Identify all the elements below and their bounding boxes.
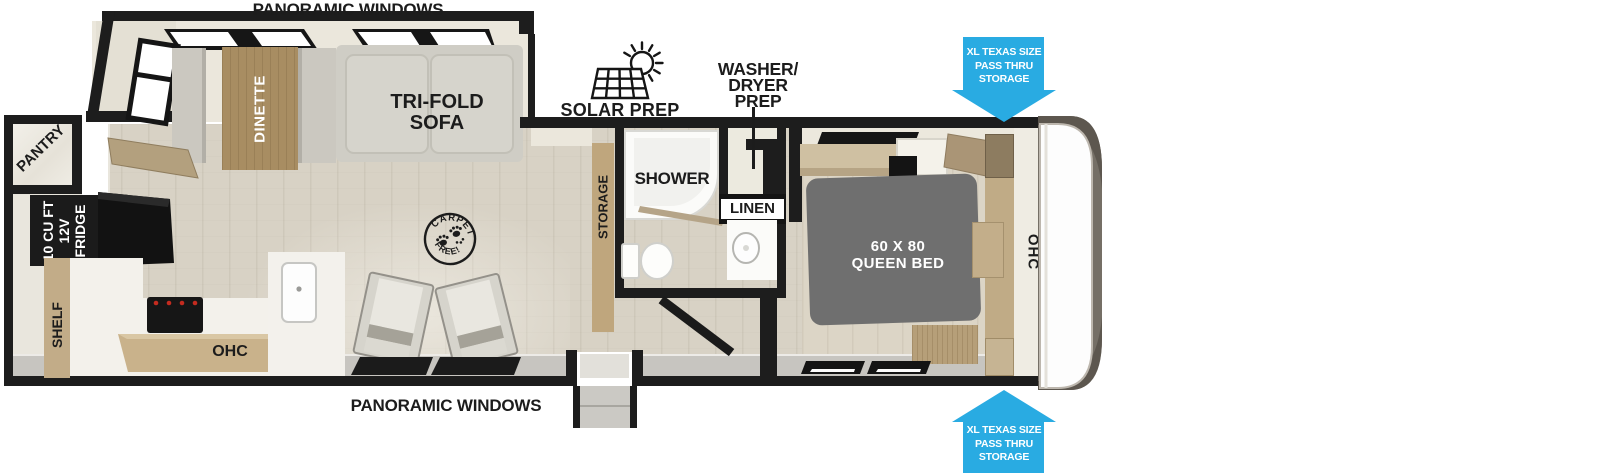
svg-text:CARPET: CARPET <box>428 211 478 240</box>
svg-text:FREE!: FREE! <box>431 238 464 259</box>
